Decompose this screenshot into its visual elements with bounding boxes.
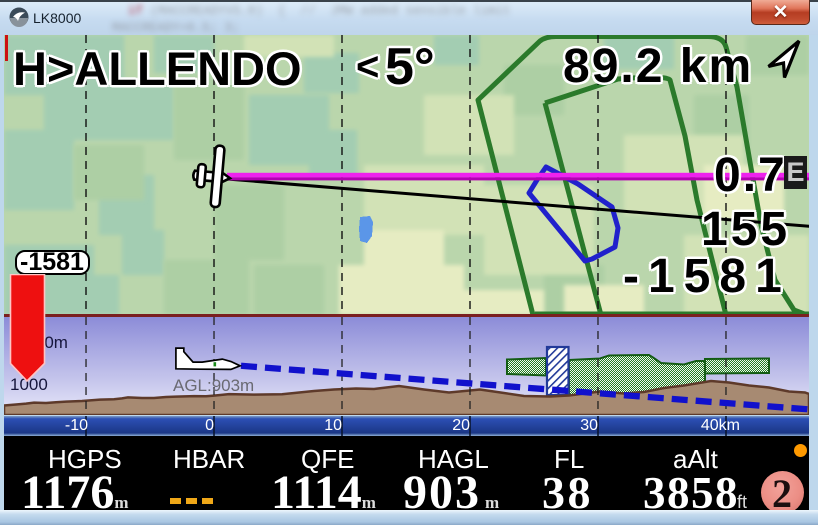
svg-text:AGL:903m: AGL:903m (173, 376, 254, 395)
